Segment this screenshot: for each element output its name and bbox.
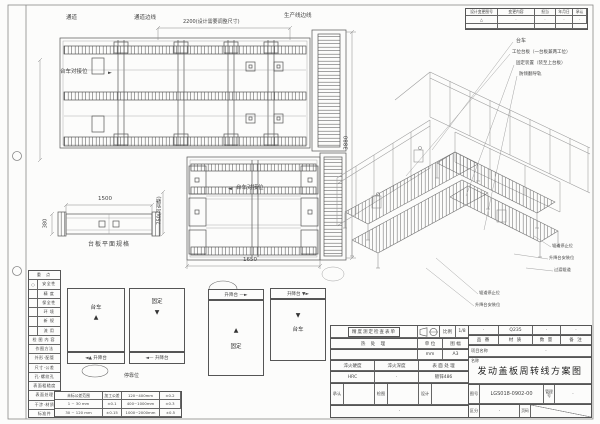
remark-value: · xyxy=(561,326,591,335)
production-line-label: 生产线边线 xyxy=(284,14,312,20)
check-signature-box xyxy=(388,384,419,405)
quench-hardness-value: HRC xyxy=(331,372,375,383)
page-value-cell xyxy=(531,405,591,417)
down-arrow-icon: ▼ xyxy=(296,312,301,319)
state-box-trolley-up: 台车 ▲ xyxy=(67,288,125,352)
drawing-sheet: 通道 通道边线 2200(设计需要调整尺寸) 生产线边线 台车对接位 ► 388… xyxy=(0,0,600,424)
unit-label: 单 位 xyxy=(418,339,443,349)
tol-cell: 30 ~ 120 mm xyxy=(55,409,103,417)
rev-header-cell: 变更内容 xyxy=(498,9,535,16)
project-name-label: 项目名称 xyxy=(469,346,501,357)
rev-header-cell: 设计变更图号 xyxy=(466,9,498,16)
isometric-decks xyxy=(345,152,558,253)
manage-no-label: 管理号 xyxy=(544,385,555,404)
check-mark xyxy=(29,327,38,335)
lift-strip-d: 升降台 ▼► xyxy=(270,288,326,299)
drawing-no-value: LGS018-0902-00 xyxy=(480,385,544,404)
design-signature-box xyxy=(432,384,468,405)
drawing-name: 发动盖板周转线方案图 xyxy=(469,358,591,384)
heat-treatment-label: 热 处 理 xyxy=(331,339,418,349)
rev-row-cell: · xyxy=(573,16,587,24)
up-arrow-icon: ▲ xyxy=(94,314,99,321)
checklist-item: 作图方法 xyxy=(29,345,60,353)
checklist-item: 精 度 xyxy=(38,290,60,298)
fixed-label: 固定 xyxy=(230,342,241,350)
rev-empty-cell xyxy=(556,24,573,29)
fixed-label: 固定 xyxy=(151,297,162,305)
rev-empty-cell xyxy=(466,24,498,29)
revision-table: 设计变更图号 变更内容 担当 年月日 承认 △ · · · · xyxy=(465,8,588,30)
aisle-line-label: 通道边线 xyxy=(134,16,156,22)
surface-treatment-label: 表 面 处 理 xyxy=(419,361,468,371)
lift-strip-c: 升降台 —► xyxy=(208,289,264,300)
lift-strip-b: ◄— 升降台 xyxy=(129,352,185,364)
tol-cell: 1 ~ 30 mm xyxy=(55,400,103,408)
state-caption: 停靠位 xyxy=(124,374,139,379)
dim-1650-label: 1650 xyxy=(243,258,257,264)
state-box-fixed-down: 固定 ▼ xyxy=(129,288,185,352)
trolley-label: 台车 xyxy=(90,303,101,311)
title-block: 精度测定检查表单 比例 1/8 热 处 理 单 位 图 幅 xyxy=(330,325,592,418)
checklist-item: 环 境 xyxy=(38,308,60,316)
page-label: 页码 xyxy=(520,405,531,417)
state-box-trolley-down: ▼ 台车 xyxy=(270,299,326,361)
tolerance-table: 未标公差范围 加工公差 120~400mm ±0.2 1 ~ 30 mm ±0.… xyxy=(54,391,182,418)
project-name-value: · xyxy=(501,346,591,357)
aisle-label: 通道 xyxy=(66,16,77,22)
drawing-no-label: 图号 xyxy=(469,385,480,404)
material-value: Q235 xyxy=(499,326,533,335)
callout-transfer-roller: 过渡辊道 xyxy=(554,268,571,272)
checklist-item: 尺寸·公差 xyxy=(29,364,60,372)
tol-cell: ±0.5 xyxy=(160,409,181,417)
rev-row-cell: · xyxy=(498,16,535,24)
tol-cell: 加工公差 xyxy=(103,392,122,400)
projection-symbol-icon xyxy=(419,327,439,337)
check-sheet-cell: 精度测定检查表单 xyxy=(331,326,418,338)
qty-value: · xyxy=(533,326,561,335)
quench-depth-value: · xyxy=(375,372,419,383)
material-label: 材 质 xyxy=(499,336,533,345)
checklist-item: 保全性 xyxy=(38,299,60,307)
checklist-section-title: 检图内容 xyxy=(29,336,60,344)
manage-no-value: · xyxy=(555,385,591,404)
callout-lift-mount-2: 升降台安装位 xyxy=(475,303,500,307)
dim-2200-label: 2200(设计需要调整尺寸) xyxy=(183,20,240,25)
quench-depth-label: 淬火深度 xyxy=(375,361,419,371)
trolley-label: 台车 xyxy=(292,325,303,333)
approve-label: 承认 xyxy=(331,384,344,405)
state-box-fixed-up: ▲ 固定 xyxy=(208,300,264,376)
side-view xyxy=(58,212,160,236)
checklist-item: 表面粗糙度 xyxy=(29,382,60,390)
tol-cell: 未标公差范围 xyxy=(55,392,103,400)
rev-header-cell: 承认 xyxy=(573,9,587,16)
checklist-section-title: 重 点 xyxy=(29,271,60,279)
projection-symbol-cell xyxy=(418,326,440,338)
dim-3880-label: 3880 xyxy=(344,136,350,150)
rev-row-cell: · xyxy=(556,16,573,24)
heat-treatment-value xyxy=(331,350,418,360)
callout-fixing-device: 固定装置（装至上台板） xyxy=(516,62,566,67)
tol-cell: ±0.2 xyxy=(160,392,181,400)
sign-row-value: · xyxy=(331,406,468,417)
class-value: · xyxy=(480,405,520,417)
checklist-item: 流 用 xyxy=(38,327,60,335)
tol-cell: ±0.15 xyxy=(103,409,122,417)
up-arrow-icon: ▲ xyxy=(234,327,239,334)
name-label: 名称 xyxy=(471,359,479,363)
check-mark: ○ xyxy=(29,280,38,288)
callout-work-pallet: 工位台板（一台板兼两工位） xyxy=(512,51,571,56)
check-mark xyxy=(29,317,38,325)
tol-cell: ±0.1 xyxy=(103,400,122,408)
title-block-left: 精度测定检查表单 比例 1/8 热 处 理 单 位 图 幅 xyxy=(331,326,469,417)
check-mark xyxy=(29,290,38,298)
remark-label: 备 注 xyxy=(561,336,591,345)
checklist-item: 安全性 xyxy=(38,280,60,288)
unit-value: mm xyxy=(418,350,443,360)
check-sheet-label: 精度测定检查表单 xyxy=(348,327,400,337)
rev-empty-cell xyxy=(498,24,535,29)
title-block-right: · Q235 · · 品 番 材 质 数 量 备 注 项目名称 · 名称 发动盖… xyxy=(469,326,591,417)
checklist-item: 新 规 xyxy=(38,317,60,325)
dim-1500-label: 1500 xyxy=(98,197,112,203)
rev-header-cell: 担当 xyxy=(535,9,556,16)
docking-arrow-bottom-icon: ◄ xyxy=(228,187,232,192)
callout-guard-rail: 防倾翻导轨 xyxy=(519,73,542,78)
scale-label: 比例 xyxy=(440,326,456,338)
docking-arrow-top-icon: ► xyxy=(108,71,112,76)
callout-roller-stop: 辊道停止位 xyxy=(552,244,573,248)
surface-treatment-value: 镀锌486 xyxy=(419,372,468,383)
checklist-item: 外形·配管 xyxy=(29,354,60,362)
checklist-item: 孔·螺纹孔 xyxy=(29,373,60,381)
docking-label-bottom: 台车对接位 xyxy=(236,186,264,192)
dim-750-label: 750(可调整) xyxy=(158,196,163,224)
rev-header-cell: 年月日 xyxy=(556,9,573,16)
check-mark xyxy=(29,299,38,307)
side-view-caption: 台板平面规格 xyxy=(88,242,130,248)
scale-value: 1/8 xyxy=(456,326,468,338)
dimension-lines xyxy=(38,26,356,269)
class-label: 区分 xyxy=(469,405,480,417)
rev-empty-cell xyxy=(535,24,556,29)
part-no-value: · xyxy=(469,326,499,335)
tol-cell: ±0.3 xyxy=(160,400,181,408)
docking-label-top: 台车对接位 xyxy=(60,70,88,76)
rev-row-cell: △ xyxy=(466,16,498,24)
rev-empty-cell xyxy=(573,24,587,29)
plan-view-top xyxy=(60,38,310,148)
approve-signature-box xyxy=(344,384,375,405)
rev-row-cell: · xyxy=(535,16,556,24)
lift-strip-a: ◄▲ 升降台 xyxy=(67,352,125,364)
callout-roller-stop-2: 辊道停止位 xyxy=(479,291,500,295)
check-label: 检图 xyxy=(375,384,388,405)
dim-380-label: 380 xyxy=(43,219,48,229)
design-label: 设计 xyxy=(419,384,432,405)
tol-cell: 120~400mm xyxy=(122,392,160,400)
callout-trolley: 台车 xyxy=(516,39,526,44)
callout-lift-mount: 升降台安装位 xyxy=(549,256,574,260)
qty-label: 数 量 xyxy=(533,336,561,345)
format-value: A3 xyxy=(443,350,468,360)
tol-cell: 1000~2000mm xyxy=(122,409,160,417)
quench-hardness-label: 淬火硬度 xyxy=(331,361,375,371)
check-mark xyxy=(29,308,38,316)
tol-cell: 400~1000mm xyxy=(122,400,160,408)
plan-view-bottom xyxy=(187,157,320,260)
part-no-label: 品 番 xyxy=(469,336,499,345)
format-label: 图 幅 xyxy=(443,339,468,349)
down-arrow-icon: ▼ xyxy=(155,309,160,316)
